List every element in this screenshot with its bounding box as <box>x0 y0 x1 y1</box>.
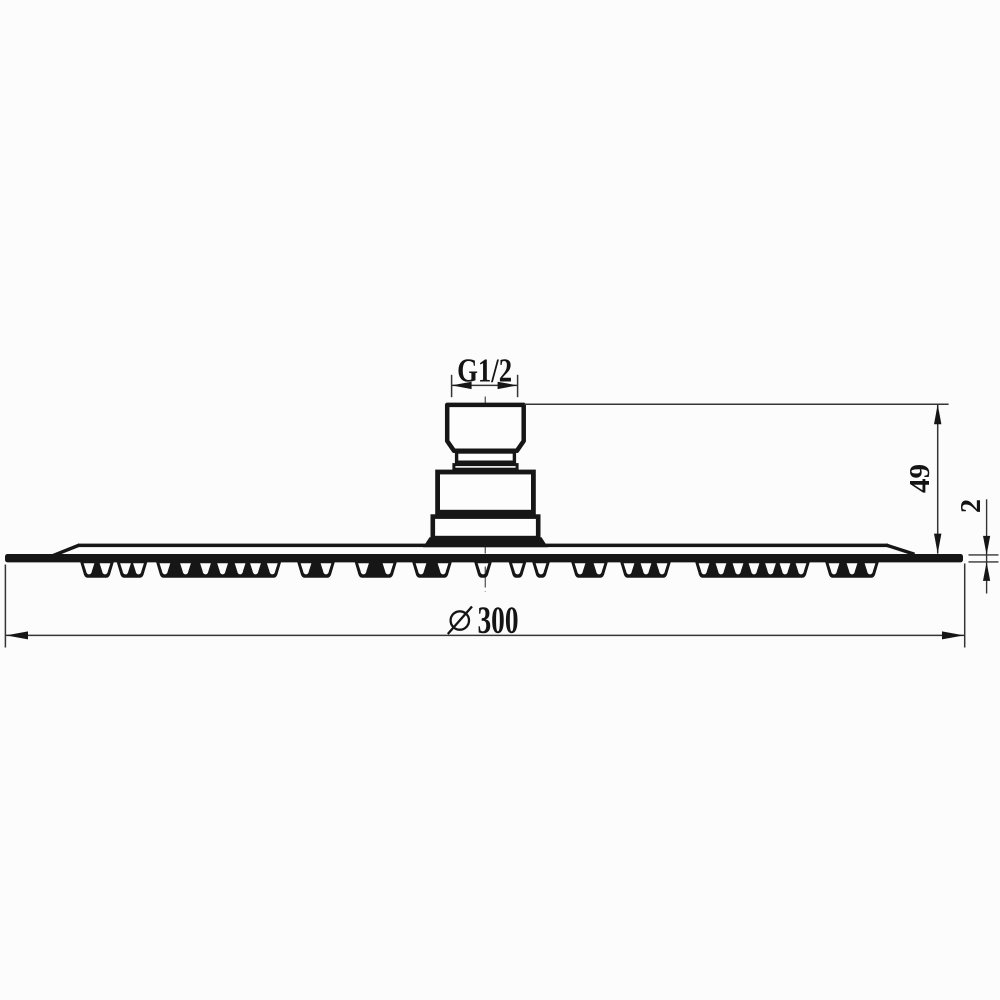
svg-text:G1/2: G1/2 <box>457 353 512 390</box>
svg-text:2: 2 <box>956 499 987 513</box>
svg-text:49: 49 <box>904 464 936 493</box>
svg-text:300: 300 <box>478 599 519 642</box>
